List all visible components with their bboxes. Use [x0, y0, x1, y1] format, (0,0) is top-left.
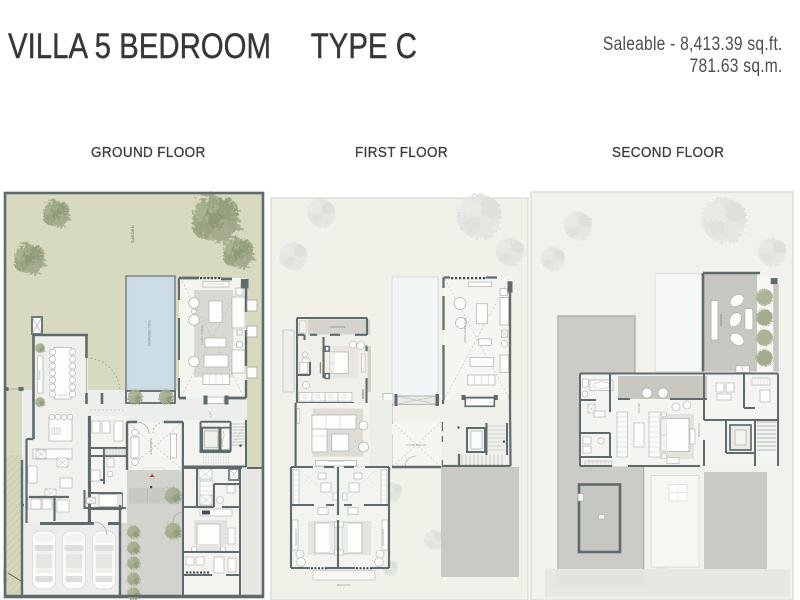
svg-text:BEDROOM: BEDROOM: [697, 423, 701, 436]
svg-text:TERRACE: TERRACE: [719, 314, 723, 327]
svg-text:MASTER: MASTER: [637, 402, 641, 413]
